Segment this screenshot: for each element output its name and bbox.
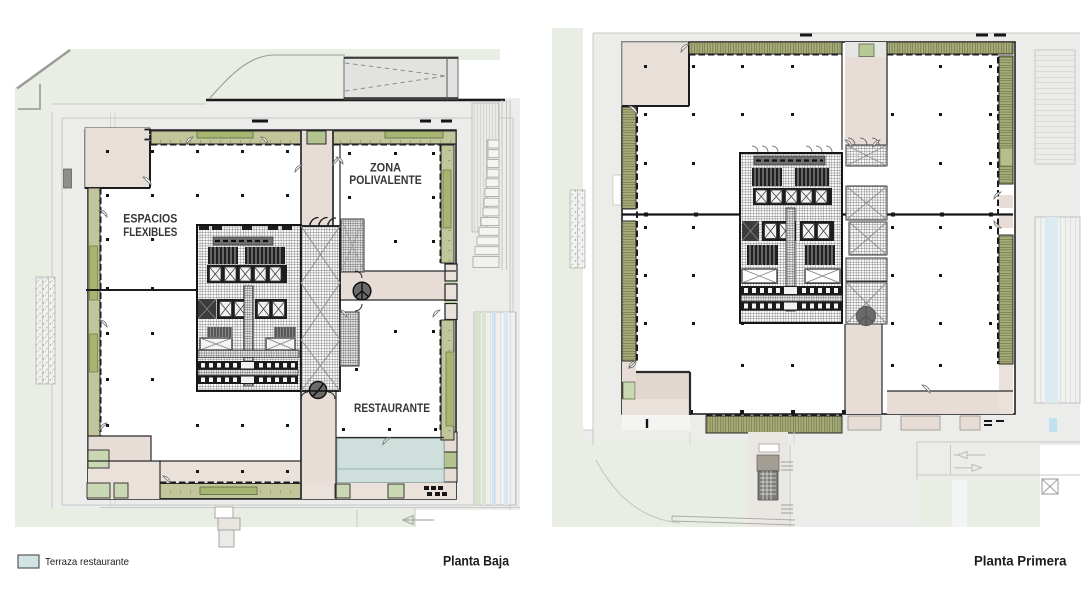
svg-text:FLEXIBLES: FLEXIBLES <box>123 227 177 239</box>
svg-text:Planta Primera: Planta Primera <box>974 554 1067 569</box>
svg-text:RESTAURANTE: RESTAURANTE <box>354 403 430 415</box>
svg-text:Planta Baja: Planta Baja <box>443 554 509 569</box>
svg-text:ESPACIOS: ESPACIOS <box>123 214 177 226</box>
svg-text:POLIVALENTE: POLIVALENTE <box>349 175 422 187</box>
svg-text:Terraza restaurante: Terraza restaurante <box>45 556 129 568</box>
svg-text:ZONA: ZONA <box>370 163 401 175</box>
